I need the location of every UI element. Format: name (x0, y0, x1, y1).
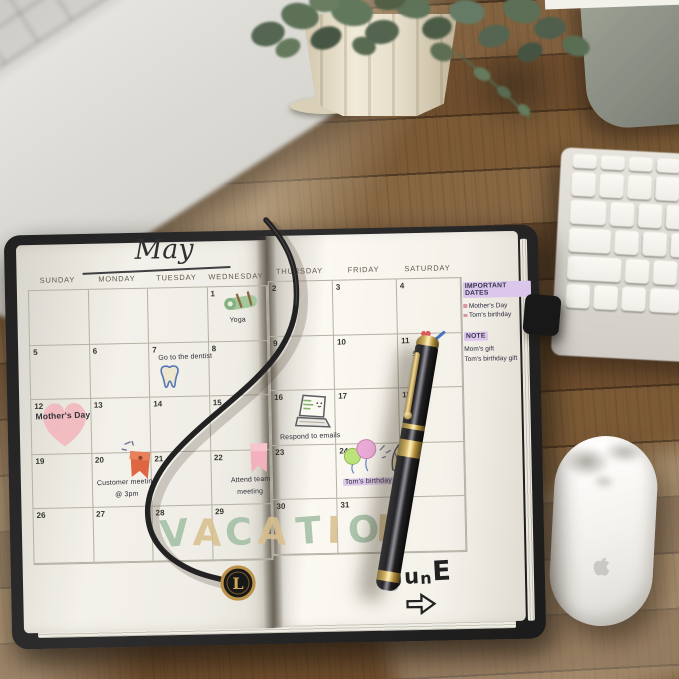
yoga-mat-sticker (221, 290, 262, 317)
day-number: 16 (274, 393, 283, 402)
calendar-cell (88, 289, 149, 345)
day-number: 11 (401, 336, 410, 345)
weekday-header: SATURDAY (395, 263, 459, 273)
apple-logo-icon (591, 553, 612, 578)
day-number: 20 (95, 455, 104, 464)
weekday-header: WEDNESDAY (206, 271, 266, 281)
laptop-keyboard-keys (0, 0, 241, 130)
day-number: 9 (273, 339, 278, 348)
keyboard-key (656, 158, 679, 173)
keyboard-key (573, 154, 598, 169)
keyboard-key (568, 228, 611, 254)
day-number: 1 (210, 289, 215, 298)
note-item: Mom's gift (464, 345, 532, 353)
day-number: 27 (96, 510, 105, 519)
vacation-letter: A (257, 509, 288, 553)
calendar-cell: 2 (269, 281, 334, 337)
keyboard-key (653, 260, 678, 285)
calendar-cell: 6 (90, 343, 151, 399)
day-number: 26 (37, 511, 46, 520)
note-mothers-day: Mother's Day (35, 409, 90, 421)
june-letter: E (431, 555, 451, 587)
important-date-text: Mother's Day (469, 302, 508, 310)
calendar-cell: 27 (93, 507, 154, 563)
bullet-icon (463, 314, 467, 318)
day-number: 3 (336, 283, 341, 292)
day-number: 17 (338, 392, 347, 401)
bullet-icon (463, 304, 467, 308)
keyboard-key (610, 202, 635, 227)
important-dates-list: Mother's DayTom's birthday (463, 301, 531, 319)
pink-flag-sticker (248, 442, 271, 474)
note-block: NOTE Mom's giftTom's birthday gift (464, 324, 533, 363)
note-title: NOTE (464, 332, 488, 341)
tooth-doodle (156, 362, 183, 393)
june-arrow-icon (405, 593, 437, 616)
vacation-letter: V (158, 511, 190, 556)
keyboard-key (637, 203, 662, 228)
vacation-letter: T (294, 508, 322, 553)
vacation-letter: A (192, 511, 222, 555)
desktop-keyboard (551, 147, 679, 365)
day-number: 4 (400, 281, 405, 290)
keyboard-key (621, 287, 646, 312)
weekday-header: FRIDAY (331, 264, 395, 274)
calendar-cell: 9 (270, 335, 335, 391)
keyboard-key (670, 233, 679, 258)
day-number: 10 (337, 337, 346, 346)
day-number: 5 (33, 348, 38, 357)
calendar-cell: 17 (335, 389, 400, 445)
important-date-text: Tom's birthday (469, 311, 511, 319)
important-dates-title: IMPORTANT DATES (463, 281, 531, 298)
plant-leaves (224, 0, 624, 116)
orange-ribbon-sticker (120, 440, 157, 481)
keyboard-key (649, 288, 679, 314)
note-list: Mom's giftTom's birthday gift (464, 345, 532, 363)
vacation-letter: C (224, 510, 254, 554)
keyboard-key (571, 172, 596, 197)
vacation-writing: VACATION (160, 507, 401, 558)
weekday-header: MONDAY (87, 274, 147, 284)
note-team-meeting-1: Attend team (231, 476, 271, 485)
open-planner: May SUNDAYMONDAYTUESDAYWEDNESDAY THURSDA… (4, 224, 547, 649)
note-item: Tom's birthday gift (464, 355, 532, 363)
day-number: 7 (152, 345, 157, 354)
weekday-header: TUESDAY (147, 272, 207, 282)
calendar-cell (148, 287, 209, 343)
keyboard-key (627, 175, 652, 200)
keyboard-key (665, 205, 679, 230)
june-letter: u (403, 564, 419, 589)
calendar-cell: 10 (334, 334, 399, 390)
sidebar-notes: IMPORTANT DATES Mother's DayTom's birthd… (463, 281, 533, 363)
calendar-cell: 21 (151, 451, 212, 507)
calendar-cell: 5 (30, 344, 91, 400)
keyboard-key (642, 232, 667, 257)
vacation-letter: I (327, 509, 341, 552)
calendar-cell: 26 (33, 508, 94, 564)
day-number: 15 (213, 398, 222, 407)
keyboard-key (567, 256, 622, 283)
pen-loop (522, 294, 561, 337)
calendar-cell: 14 (150, 397, 211, 453)
laptop-doodle (289, 391, 340, 434)
apple-magic-mouse (547, 433, 660, 628)
leaf-shadow-on-mouse (547, 433, 660, 628)
calendar-cell: 3 (333, 279, 398, 335)
important-date-item: Tom's birthday (463, 311, 531, 319)
weekday-header: SUNDAY (28, 275, 88, 285)
calendar-cell: 19 (32, 454, 93, 510)
heart-sticker (35, 396, 94, 451)
plant-sprig (452, 48, 542, 128)
keyboard-key (614, 230, 639, 255)
note-yoga: Yoga (229, 316, 246, 324)
weekday-header: THURSDAY (267, 266, 331, 276)
day-number: 2 (272, 284, 277, 293)
keyboard-key (593, 285, 618, 310)
day-number: 22 (214, 453, 223, 462)
keyboard-key (625, 259, 650, 284)
calendar-cell: 8 (208, 341, 269, 397)
keyboard-key (628, 157, 653, 172)
desk-photo: May SUNDAYMONDAYTUESDAYWEDNESDAY THURSDA… (0, 0, 679, 679)
keyboard-key (570, 200, 607, 226)
day-number: 6 (93, 346, 98, 355)
note-team-meeting-2: meeting (237, 488, 263, 496)
day-number: 8 (212, 344, 217, 353)
day-number: 13 (94, 401, 103, 410)
note-customer-meeting-2: @ 3pm (115, 491, 139, 499)
keyboard-key (600, 155, 625, 170)
keyboard-key (655, 176, 679, 201)
day-number: 14 (153, 400, 162, 409)
day-number: 19 (35, 457, 44, 466)
calendar-cell (29, 290, 90, 346)
calendar-cell: 4 (397, 278, 462, 334)
keyboard-key (565, 284, 590, 309)
keyboard-key (599, 173, 624, 198)
important-date-item: Mother's Day (463, 301, 531, 309)
month-title: May (79, 233, 250, 268)
june-letter: n (420, 568, 432, 588)
day-number: 23 (275, 448, 284, 457)
calendar-cell: 23 (272, 445, 337, 501)
